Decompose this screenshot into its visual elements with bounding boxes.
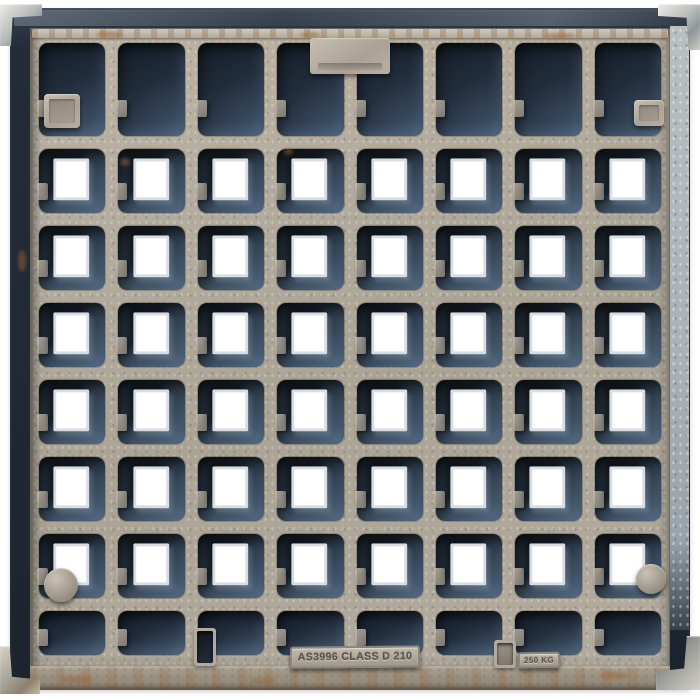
drain-hole [292,543,328,585]
rust-patch [18,250,26,272]
bottom-pad-right [494,640,516,668]
drain-hole [609,389,645,431]
drain-hole [450,543,486,585]
rust-patch [250,678,276,684]
grate-cell [357,226,423,290]
drain-hole [53,466,89,508]
grate-cell [39,457,105,521]
grate-cell [595,149,661,213]
grate-cell [118,303,184,367]
drain-hole [371,235,407,277]
grate-cell [515,457,581,521]
drain-hole [371,543,407,585]
drain-hole [450,158,486,200]
drain-hole [53,235,89,277]
grate-cell [515,534,581,598]
grate-cell [39,303,105,367]
grate-cell [118,457,184,521]
drain-hole [53,312,89,354]
grate-cell [436,380,502,444]
grate-cell [436,303,502,367]
grate-cell [515,611,581,655]
grate-cell [118,611,184,655]
drain-hole [530,158,566,200]
grate-cell [198,149,264,213]
grate-grid [30,28,670,672]
drain-hole [212,235,248,277]
grate-cell [198,457,264,521]
frame-right-rim [670,26,689,630]
grate-cell [515,226,581,290]
round-boss-right [636,564,666,594]
drain-hole [133,312,169,354]
drain-hole [133,158,169,200]
rust-patch [284,148,293,155]
grate-cell [277,226,343,290]
drain-hole [212,543,248,585]
standard-marking-plate: AS3996 CLASS D 210 [290,645,420,668]
drain-hole [530,543,566,585]
drain-hole [371,312,407,354]
square-boss-left [44,94,80,128]
grate-cell [277,534,343,598]
drain-hole [212,158,248,200]
pad-face [497,643,513,665]
grate-photo: AS3996 CLASS D 210 250 KG [0,0,700,700]
grate-cell [198,380,264,444]
grate-cell [595,611,661,655]
grate-cell [118,226,184,290]
drain-hole [292,235,328,277]
drain-hole [450,389,486,431]
drain-hole [212,312,248,354]
drain-hole [530,312,566,354]
grate-cell [436,149,502,213]
round-boss-left [44,568,78,602]
grate-cell [595,457,661,521]
grate-cell [118,534,184,598]
bottom-slot-left [194,628,216,666]
weight-marking-plate: 250 KG [518,652,560,668]
grate-cell [436,534,502,598]
grate-cell [515,303,581,367]
grate-cell [357,303,423,367]
grate-cell [198,43,264,136]
rust-patch [60,676,94,683]
grate-cell [39,226,105,290]
grate-cell [198,534,264,598]
drain-hole [371,466,407,508]
grate-cell [515,149,581,213]
grate-cell [357,534,423,598]
drain-hole [530,466,566,508]
drain-hole [133,389,169,431]
drain-hole [371,158,407,200]
drain-hole [133,466,169,508]
grate-cell [436,43,502,136]
drain-hole [133,235,169,277]
grate-cell [357,149,423,213]
grate-cell [39,611,105,655]
rust-patch [300,32,320,38]
grate-cell [595,380,661,444]
grate-cell [39,149,105,213]
drain-hole [530,235,566,277]
drain-hole [609,235,645,277]
drain-hole [292,466,328,508]
grate-cell [357,380,423,444]
weight-marking-text: 250 KG [524,655,554,664]
slot-opening [197,631,213,663]
frame-top-sheen [14,10,686,26]
drain-hole [609,158,645,200]
drain-hole [53,158,89,200]
square-boss-right [634,100,664,126]
rust-patch [96,31,122,38]
grate-cell [595,226,661,290]
grate-cell [436,226,502,290]
lifting-tab [310,38,390,74]
grate-cell [357,457,423,521]
drain-hole [133,543,169,585]
drain-hole [530,389,566,431]
drain-hole [450,312,486,354]
drain-hole [292,158,328,200]
bottom-weathered-rib [30,666,670,690]
rust-patch [600,672,628,679]
grate-cell [595,303,661,367]
grate-cell [277,380,343,444]
drain-hole [609,466,645,508]
drain-hole [53,389,89,431]
grate-cell [198,226,264,290]
rust-patch [545,33,575,39]
grate-cell [277,149,343,213]
grate-cell [277,457,343,521]
rust-patch [120,158,130,166]
standard-marking-text: AS3996 CLASS D 210 [298,650,413,663]
grate-cell [118,43,184,136]
grate-cell [198,303,264,367]
drain-hole [371,389,407,431]
grate-cell [436,457,502,521]
drain-hole [609,312,645,354]
grate-cell [436,611,502,655]
drain-hole [292,312,328,354]
drain-hole [292,389,328,431]
drain-hole [212,389,248,431]
drain-hole [450,466,486,508]
drain-hole [450,235,486,277]
grate-cell [515,43,581,136]
grate-cell [515,380,581,444]
grate-cell [39,380,105,444]
grate-cell [118,380,184,444]
drain-hole [212,466,248,508]
grate-cell [277,303,343,367]
